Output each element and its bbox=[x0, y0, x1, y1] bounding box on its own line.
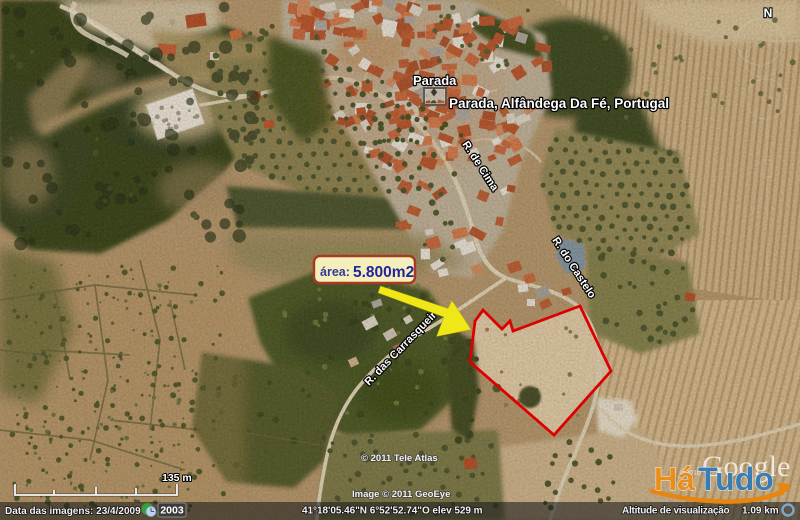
svg-text:Image © 2011 GeoEye: Image © 2011 GeoEye bbox=[352, 489, 450, 500]
svg-text:2003: 2003 bbox=[160, 505, 184, 517]
svg-text:1.09 km: 1.09 km bbox=[742, 506, 779, 517]
svg-text:135 m: 135 m bbox=[162, 472, 192, 484]
svg-text:5.800m2: 5.800m2 bbox=[353, 264, 414, 281]
svg-text:N: N bbox=[764, 6, 773, 20]
svg-text:Parada, Alfândega Da Fé, Portu: Parada, Alfândega Da Fé, Portugal bbox=[449, 96, 669, 111]
svg-text:Há: Há bbox=[654, 461, 695, 497]
svg-text:Data das imagens: 23/4/2009: Data das imagens: 23/4/2009 bbox=[5, 506, 141, 517]
svg-text:Tudo: Tudo bbox=[698, 461, 774, 497]
svg-text:Parada: Parada bbox=[413, 73, 457, 88]
svg-text:© 2011 Tele Atlas: © 2011 Tele Atlas bbox=[361, 453, 438, 464]
svg-text:área:: área: bbox=[320, 265, 350, 279]
svg-text:41°18'05.46"N 6°52'52.74"O: 41°18'05.46"N 6°52'52.74"O elev 529 m bbox=[302, 506, 483, 517]
svg-text:Altitude de visualização: Altitude de visualização bbox=[622, 506, 730, 517]
